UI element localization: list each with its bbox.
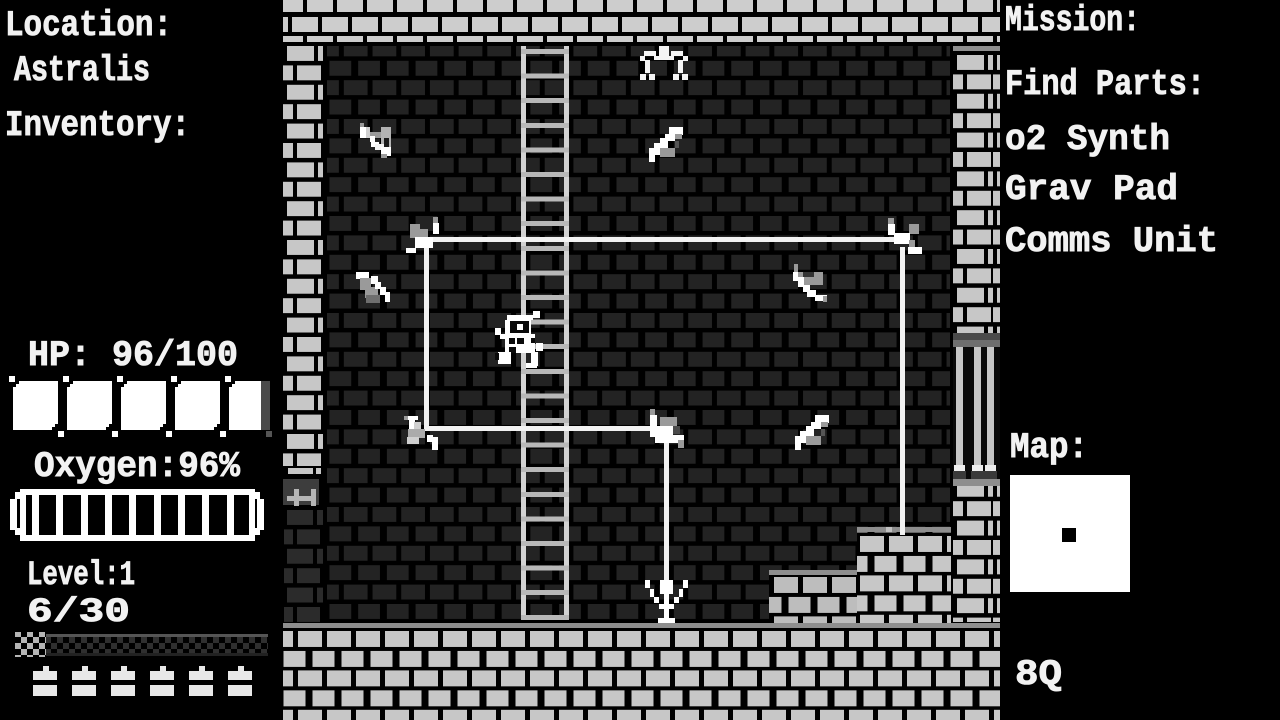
svg-text:Location:: Location: <box>5 5 172 46</box>
svg-text:HP: 96/100: HP: 96/100 <box>28 335 238 376</box>
svg-text:o2 Synth: o2 Synth <box>1005 119 1170 160</box>
svg-text:Astralis: Astralis <box>14 50 150 91</box>
svg-text:Find Parts:: Find Parts: <box>1005 64 1205 105</box>
svg-text:6/30: 6/30 <box>27 594 130 632</box>
svg-text:Level:1: Level:1 <box>27 557 135 595</box>
svg-text:Oxygen:96%: Oxygen:96% <box>34 446 240 487</box>
svg-text:Comms Unit: Comms Unit <box>1005 221 1218 262</box>
svg-text:8Q: 8Q <box>1015 654 1062 695</box>
svg-text:Inventory:: Inventory: <box>5 105 190 146</box>
svg-text:Mission:: Mission: <box>1005 0 1140 41</box>
svg-text:Map:: Map: <box>1010 427 1088 468</box>
svg-text:Grav Pad: Grav Pad <box>1005 169 1178 210</box>
